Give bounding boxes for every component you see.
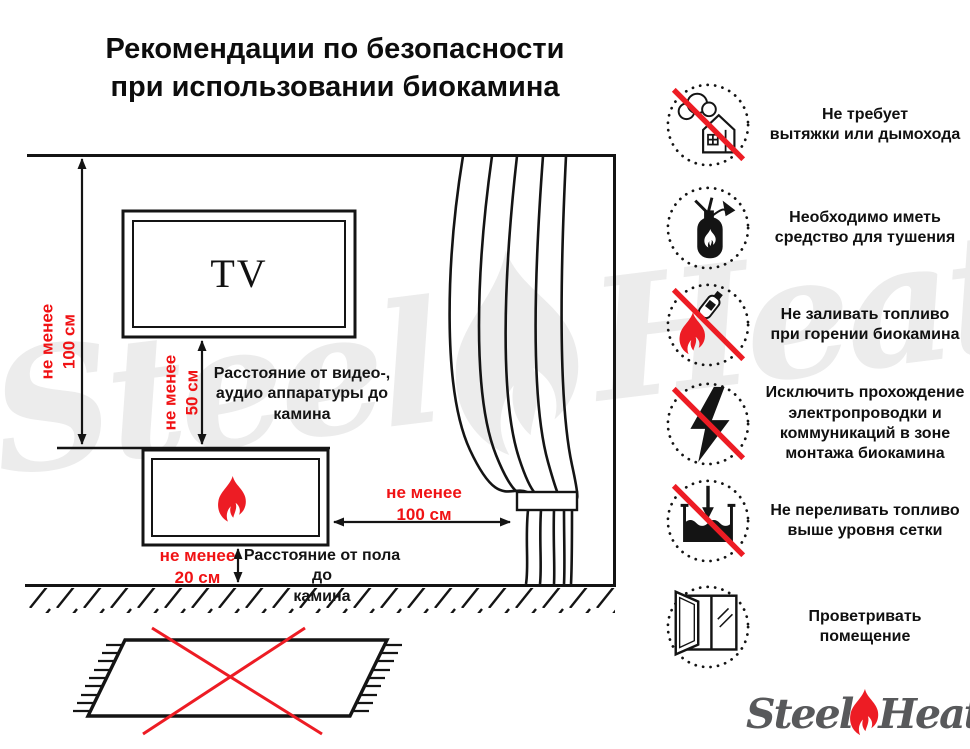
logo-heat-text: Heat bbox=[878, 690, 970, 738]
logo-flame-icon bbox=[847, 688, 881, 736]
rule-text: Исключить прохождение электропроводки и … bbox=[764, 383, 966, 465]
dimension-floor-label: не менее 20 см bbox=[140, 545, 255, 588]
steelheat-logo: Steel Heat bbox=[746, 688, 970, 740]
room-diagram bbox=[0, 140, 660, 749]
logo-steel-text: Steel bbox=[746, 690, 852, 738]
open-window-icon bbox=[664, 583, 752, 671]
extinguisher-icon bbox=[664, 184, 752, 272]
rule-text: Не переливать топливо выше уровня сетки bbox=[764, 501, 966, 542]
carpet bbox=[73, 628, 402, 734]
rule-extinguisher: Необходимо иметь средство для тушения bbox=[664, 184, 966, 272]
title-line-1: Рекомендации по безопасности bbox=[25, 30, 645, 68]
dimension-wall-label: не менее 100 см bbox=[36, 267, 79, 417]
caption-tv-distance: Расстояние от видео-, аудио аппаратуры д… bbox=[212, 364, 392, 425]
no-chimney-icon bbox=[664, 81, 752, 169]
rule-no-overfill: Не переливать топливо выше уровня сетки bbox=[664, 477, 966, 565]
page-title: Рекомендации по безопасности при использ… bbox=[25, 30, 645, 107]
dimension-tv-label: не менее 50 см bbox=[159, 338, 202, 448]
safety-recommendations-poster: Steel Heat Рекомендации по безопасности … bbox=[0, 0, 970, 749]
rule-text: Не требует вытяжки или дымохода bbox=[764, 105, 966, 146]
no-wiring-icon bbox=[664, 380, 752, 468]
no-refuel-icon bbox=[664, 281, 752, 369]
rule-text: Проветривать помещение bbox=[764, 607, 966, 648]
rule-ventilate: Проветривать помещение bbox=[664, 583, 966, 671]
tv-label: TV bbox=[123, 250, 355, 297]
rule-no-chimney: Не требует вытяжки или дымохода bbox=[664, 81, 966, 169]
rule-no-refuel: Не заливать топливо при горении биокамин… bbox=[664, 281, 966, 369]
rule-text: Не заливать топливо при горении биокамин… bbox=[764, 305, 966, 346]
rule-no-wiring: Исключить прохождение электропроводки и … bbox=[664, 380, 966, 468]
curtain-tie bbox=[517, 492, 577, 510]
caption-floor-distance: Расстояние от пола до камина bbox=[242, 546, 402, 607]
dimension-curtain-label: не менее 100 см bbox=[354, 482, 494, 525]
rule-text: Необходимо иметь средство для тушения bbox=[764, 208, 966, 249]
title-line-2: при использовании биокамина bbox=[25, 68, 645, 106]
no-overfill-icon bbox=[664, 477, 752, 565]
